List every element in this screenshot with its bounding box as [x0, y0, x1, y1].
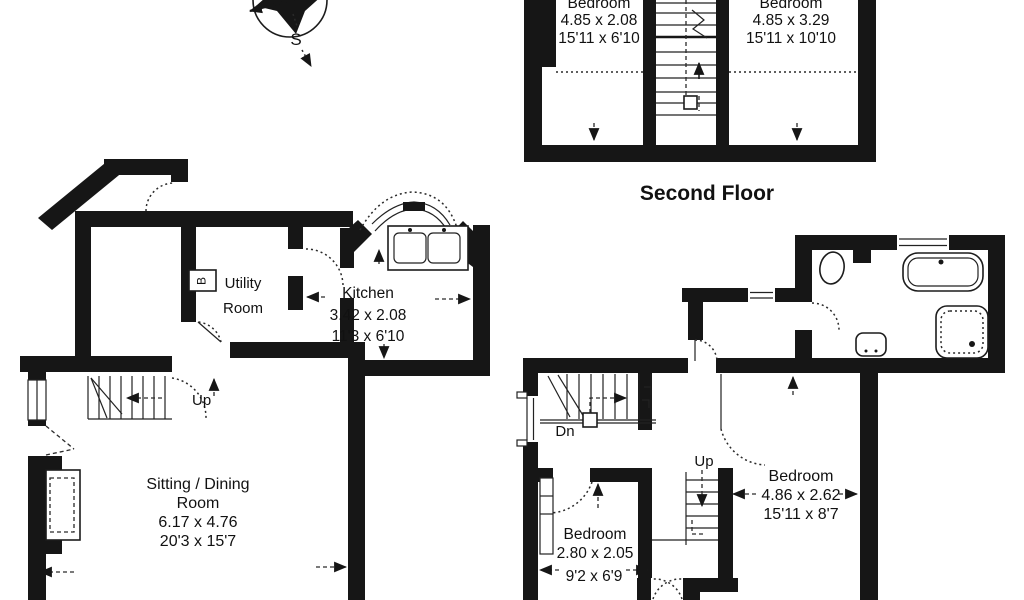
room-dim-metric: 4.86 x 2.62: [761, 487, 840, 504]
room-dim-imperial: 15'11 x 8'7: [763, 506, 838, 523]
toilet-icon: [817, 250, 846, 286]
stair-newel: [583, 413, 597, 427]
second-floor-stairs-icon: [656, 0, 716, 115]
room-dim-imperial: 11'3 x 6'10: [332, 328, 405, 345]
stairs-up-label: Up: [694, 453, 713, 470]
room-dim-imperial: 15'11 x 10'10: [746, 30, 836, 47]
floorplan-canvas: S: [0, 0, 1024, 600]
room-dim-imperial: 15'11 x 6'10: [558, 30, 640, 47]
boiler-label: B: [195, 277, 209, 285]
ground-floor-walls: [20, 159, 490, 600]
stairs-up-label: Up: [192, 392, 211, 409]
room-label: Bedroom: [564, 526, 627, 543]
floor-title: Second Floor: [640, 182, 774, 205]
sitting-dining-label: Sitting / Dining: [146, 476, 249, 493]
room-dim-metric: 3.42 x 2.08: [330, 307, 407, 324]
bay-window: [360, 192, 457, 231]
room-dim-metric: 4.85 x 3.29: [753, 12, 830, 29]
fireplace-icon: [44, 456, 80, 554]
ground-floor-plan: B: [20, 159, 490, 600]
first-floor-plan: Dn Up: [517, 235, 1005, 600]
ground-stairs-icon: [88, 376, 206, 419]
door-arc: [653, 579, 682, 599]
utility-room-label: Room: [223, 300, 263, 317]
room-dim-metric: 6.17 x 4.76: [158, 514, 237, 531]
door-arc: [653, 579, 682, 599]
window: [28, 380, 46, 420]
door-arc: [549, 482, 592, 513]
door-arc: [146, 183, 174, 211]
room-dim-imperial: 9'2 x 6'9: [566, 568, 623, 585]
compass-south-label: S: [290, 30, 301, 49]
room-dim-metric: 4.85 x 2.08: [561, 12, 638, 29]
window: [517, 392, 538, 446]
door-arc: [695, 340, 717, 361]
sink-icon: [856, 333, 886, 356]
kitchen-sink-icon: [388, 226, 468, 270]
door-arc: [306, 249, 343, 286]
stair-newel: [684, 96, 697, 109]
wardrobe: [540, 478, 553, 554]
room-label: Bedroom: [769, 468, 834, 485]
second-floor-plan: Bedroom 4.85 x 2.08 15'11 x 6'10 Bedroom…: [524, 0, 876, 205]
kitchen-label: Kitchen: [342, 285, 394, 302]
door-arc: [812, 303, 839, 330]
bathtub-icon: [903, 253, 983, 291]
stair-direction-arrow: [590, 398, 626, 413]
shower-icon: [936, 306, 988, 358]
utility-room-label: Utility: [225, 275, 262, 292]
stairs-up-icon: [652, 470, 718, 545]
room-label: Bedroom: [760, 0, 823, 12]
chimney-stub: [853, 250, 871, 263]
door-leaf: [46, 449, 74, 455]
sitting-dining-label: Room: [177, 495, 220, 512]
door-arc: [721, 429, 765, 465]
room-label: Bedroom: [568, 0, 631, 12]
compass-rose: S: [250, 0, 327, 66]
window: [899, 239, 947, 246]
room-dim-metric: 2.80 x 2.05: [557, 545, 634, 562]
stair-break-mark: [692, 10, 707, 38]
boiler-box: B: [189, 270, 216, 291]
room-dim-imperial: 20'3 x 15'7: [160, 533, 236, 550]
compass-south-arrow: [302, 50, 311, 66]
door-leaf: [46, 426, 74, 449]
window: [750, 293, 773, 299]
stairs-down-label: Dn: [555, 423, 574, 440]
